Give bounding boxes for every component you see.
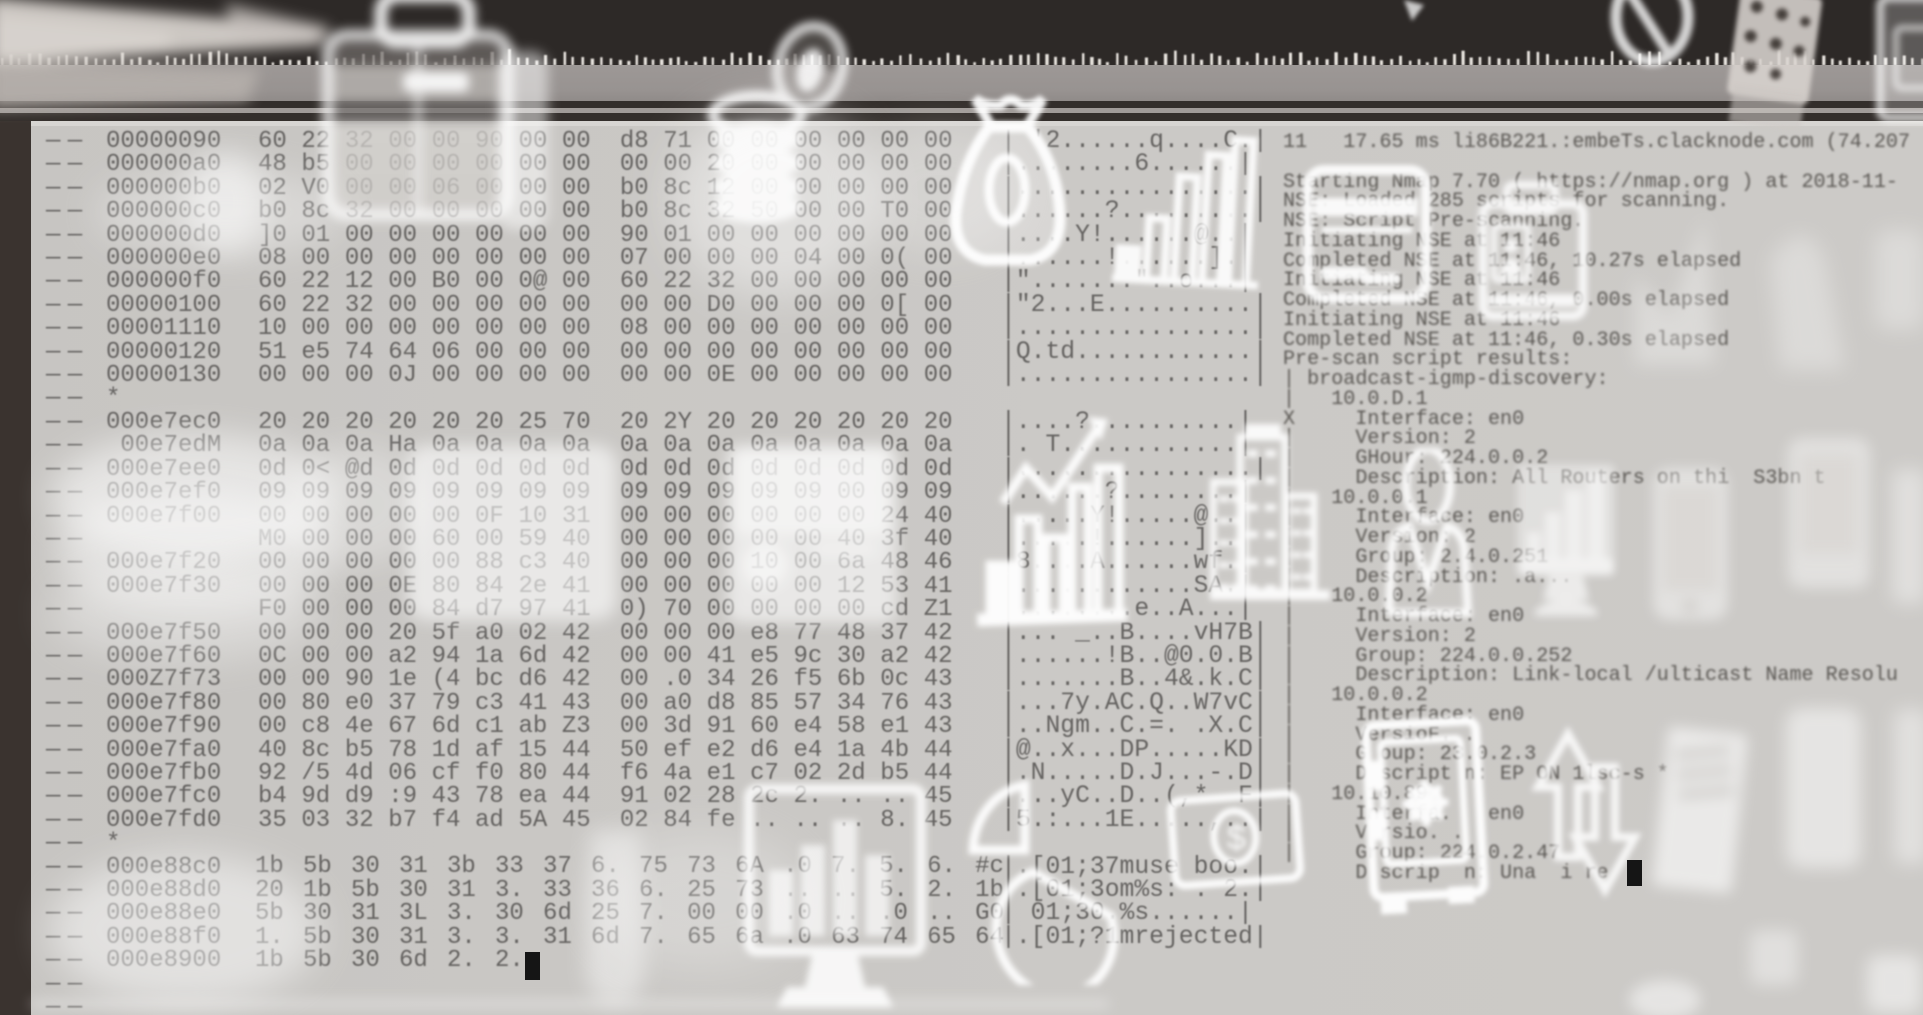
svg-text:$: $: [1227, 819, 1246, 857]
